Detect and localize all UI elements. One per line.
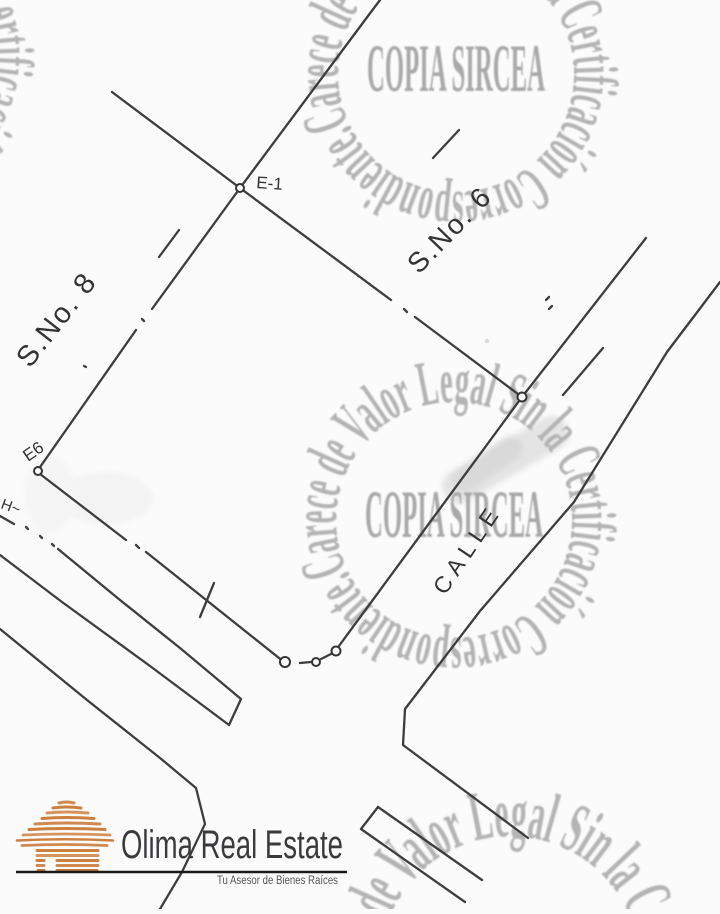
svg-text:Olima Real Estate: Olima Real Estate [121,823,343,867]
svg-text:E-1: E-1 [256,173,284,194]
svg-text:Tu Asesor de Bienes Raíces: Tu Asesor de Bienes Raíces [217,875,338,887]
